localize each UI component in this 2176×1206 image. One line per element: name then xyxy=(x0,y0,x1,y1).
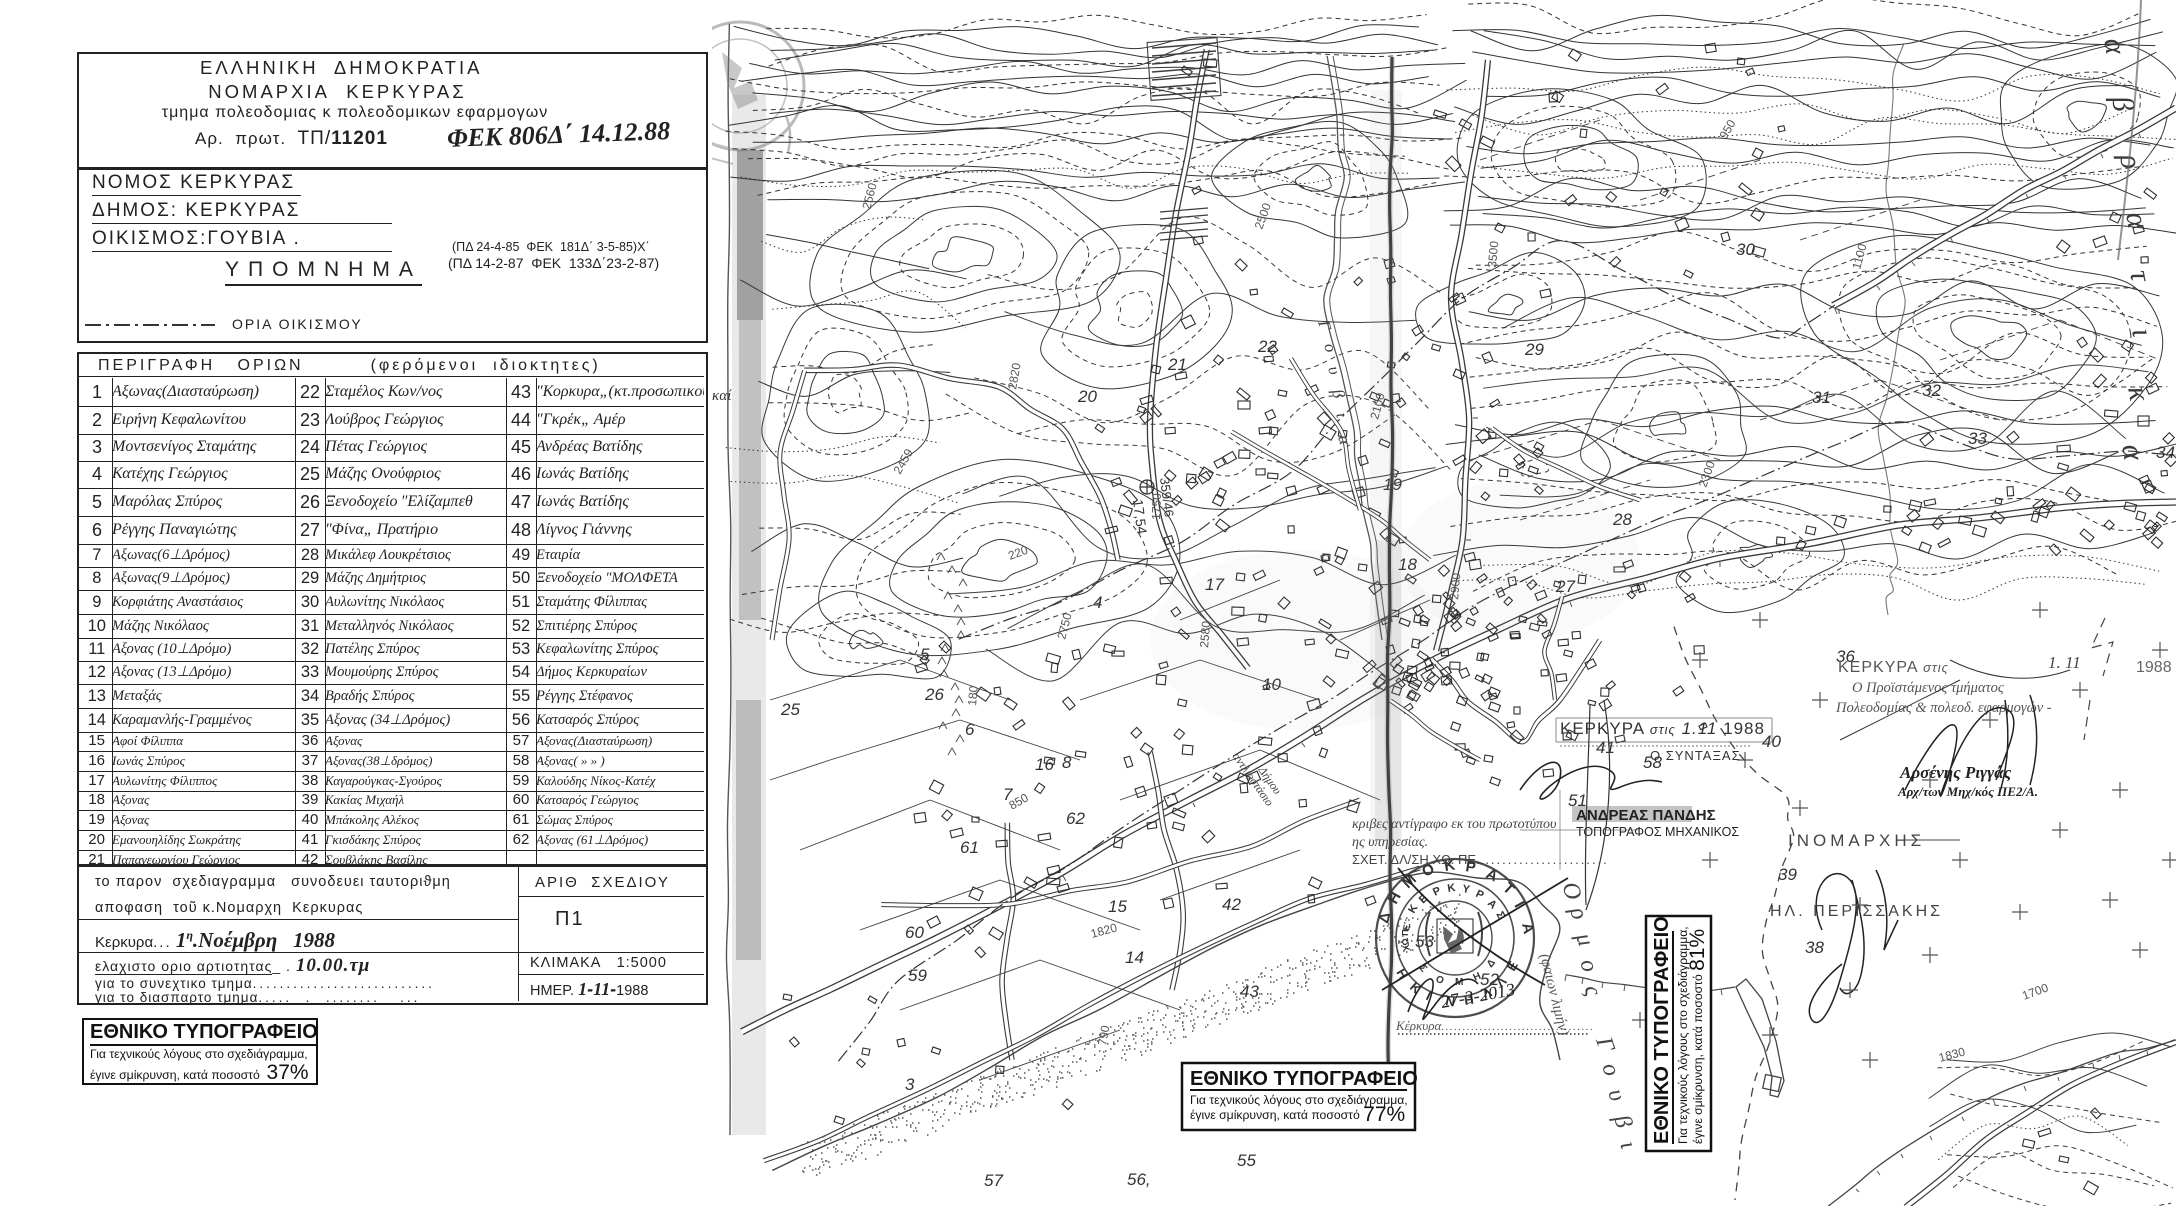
svg-text:790: 790 xyxy=(1095,1024,1112,1046)
svg-text:180: 180 xyxy=(965,685,981,706)
svg-text:Η: Η xyxy=(1385,889,1405,907)
svg-text:Ρ: Ρ xyxy=(1474,888,1486,902)
svg-text:τ: τ xyxy=(2123,267,2158,285)
svg-text:14: 14 xyxy=(1125,948,1144,967)
svg-text:1820: 1820 xyxy=(1089,920,1119,941)
svg-text:μ: μ xyxy=(1570,929,1599,949)
svg-text:.: . xyxy=(1400,937,1410,940)
svg-text:ι: ι xyxy=(1332,410,1352,420)
svg-text:Υ: Υ xyxy=(1462,883,1472,896)
svg-text:Ο Προϊστάμενος τμήματος: Ο Προϊστάμενος τμήματος xyxy=(1852,680,2004,696)
svg-text:20: 20 xyxy=(1077,387,1097,406)
svg-text:Ο ΣΥΝΤΑΞΑΣ: Ο ΣΥΝΤΑΞΑΣ xyxy=(1650,748,1741,763)
svg-text:κ: κ xyxy=(2121,383,2156,404)
svg-text:ΕΘΝΙΚΟ ΤΥΠΟΓΡΑΦΕΙΟ: ΕΘΝΙΚΟ ΤΥΠΟΓΡΑΦΕΙΟ xyxy=(1190,1068,1418,1090)
svg-text:2900: 2900 xyxy=(1447,572,1463,600)
svg-text:33: 33 xyxy=(1968,429,1987,448)
svg-text:ης υπηρεσίας.: ης υπηρεσίας. xyxy=(1352,835,1428,850)
svg-text:Γ: Γ xyxy=(1314,317,1335,334)
svg-text:15: 15 xyxy=(1108,897,1127,916)
svg-text:2580: 2580 xyxy=(1197,620,1213,648)
svg-text:2560: 2560 xyxy=(859,181,880,211)
svg-text:Αρσένης Ριγγάς: Αρσένης Ριγγάς xyxy=(1899,763,2012,782)
svg-text:56,: 56, xyxy=(1127,1170,1151,1189)
svg-text:39: 39 xyxy=(1778,865,1797,884)
svg-text:17,54: 17,54 xyxy=(1130,498,1150,535)
svg-text:29: 29 xyxy=(1524,340,1544,359)
svg-text:41: 41 xyxy=(1596,738,1615,757)
svg-text:34: 34 xyxy=(2156,443,2175,462)
svg-text:62: 62 xyxy=(1066,809,1085,828)
svg-text:43: 43 xyxy=(1240,982,1259,1001)
svg-text:Αρχ/των Μηχ/κός ΠΕ2/Α.: Αρχ/των Μηχ/κός ΠΕ2/Α. xyxy=(1897,784,2038,799)
svg-text:220: 220 xyxy=(1006,543,1030,563)
svg-text:1988: 1988 xyxy=(2136,659,2172,676)
svg-text:57: 57 xyxy=(984,1171,1003,1190)
svg-text:ο: ο xyxy=(1320,341,1341,354)
svg-text:26: 26 xyxy=(924,685,944,704)
svg-text:α: α xyxy=(2115,441,2150,463)
svg-text:Ο: Ο xyxy=(1434,974,1446,987)
svg-text:Κέρκυρα.......................: Κέρκυρα.................................… xyxy=(1395,1018,1594,1033)
svg-text:2820: 2820 xyxy=(1005,361,1023,390)
svg-text:55: 55 xyxy=(1237,1151,1256,1170)
svg-text:ΤΟΠΟΓΡΑΦΟΣ ΜΗΧΑΝΙΚΟΣ: ΤΟΠΟΓΡΑΦΟΣ ΜΗΧΑΝΙΚΟΣ xyxy=(1576,825,1739,839)
svg-text:Α: Α xyxy=(1485,897,1499,911)
svg-text:42: 42 xyxy=(1222,895,1241,914)
svg-text:ς: ς xyxy=(1578,982,1606,1000)
svg-text:21: 21 xyxy=(1167,355,1187,374)
svg-text:ΣΧΕΤ. ΔΛ/ΣΗ ΧΩ. ΠΕ............: ΣΧΕΤ. ΔΛ/ΣΗ ΧΩ. ΠΕ......................… xyxy=(1352,852,1609,867)
svg-text:ι: ι xyxy=(2125,325,2159,339)
svg-text:31: 31 xyxy=(1812,388,1831,407)
svg-text:Ρ: Ρ xyxy=(1431,885,1443,899)
svg-text:Δ: Δ xyxy=(1485,957,1498,970)
svg-text:Πολεοδομίας & πολεοδ. εφαρμογώ: Πολεοδομίας & πολεοδ. εφαρμογών - xyxy=(1835,700,2052,716)
svg-text:ο: ο xyxy=(1574,956,1602,975)
svg-text:1830: 1830 xyxy=(1937,1044,1967,1065)
svg-text:1750: 1750 xyxy=(1149,493,1164,520)
svg-text:2500: 2500 xyxy=(1252,201,1274,231)
svg-text:ρ: ρ xyxy=(1564,903,1593,923)
svg-text:ΕΘΝΙΚΟ ΤΥΠΟΓΡΑΦΕΙΟ: ΕΘΝΙΚΟ ΤΥΠΟΓΡΑΦΕΙΟ xyxy=(1651,916,1673,1144)
svg-text:3: 3 xyxy=(905,1075,915,1094)
svg-text:ΑΝΔΡΕΑΣ ΠΑΝΔΗΣ: ΑΝΔΡΕΑΣ ΠΑΝΔΗΣ xyxy=(1576,807,1716,824)
svg-text:61: 61 xyxy=(960,838,979,857)
svg-text:ο: ο xyxy=(1596,1060,1624,1079)
svg-text:α: α xyxy=(2097,35,2132,57)
svg-text:β: β xyxy=(1608,1111,1637,1131)
svg-text:υ: υ xyxy=(1602,1086,1630,1105)
svg-text:ΚΕΡΚΥΡΑ στις: ΚΕΡΚΥΡΑ στις xyxy=(1838,659,1949,676)
svg-text:καί: καί xyxy=(712,388,732,404)
svg-text:Γ: Γ xyxy=(1590,1033,1620,1056)
svg-text:ΚΕΡΚΥΡΑ στις 1.11 1988: ΚΕΡΚΥΡΑ στις 1.11 1988 xyxy=(1560,719,1765,738)
svg-text:60: 60 xyxy=(905,923,924,942)
svg-text:1. 11: 1. 11 xyxy=(2048,653,2081,672)
svg-text:Ε: Ε xyxy=(1417,892,1431,906)
svg-text:27-3-2013: 27-3-2013 xyxy=(1439,979,1516,1012)
svg-text:3500: 3500 xyxy=(1485,240,1501,268)
svg-text:Τ: Τ xyxy=(1499,879,1517,898)
svg-text:Κ: Κ xyxy=(1406,903,1420,916)
svg-text:2459: 2459 xyxy=(890,446,916,476)
svg-text:Ρ: Ρ xyxy=(1464,858,1477,876)
svg-text:2300: 2300 xyxy=(1696,459,1718,489)
svg-text:β: β xyxy=(1328,386,1349,401)
svg-text:38: 38 xyxy=(1805,938,1824,957)
svg-text:59: 59 xyxy=(908,966,927,985)
svg-text:1700: 1700 xyxy=(2020,980,2050,1002)
svg-text:6: 6 xyxy=(965,720,975,739)
svg-text:Α: Α xyxy=(1483,865,1500,885)
svg-text:4: 4 xyxy=(1093,593,1102,612)
svg-text:ι: ι xyxy=(1614,1138,1641,1152)
svg-text:25: 25 xyxy=(780,700,800,719)
svg-text:Κ: Κ xyxy=(1447,882,1457,895)
